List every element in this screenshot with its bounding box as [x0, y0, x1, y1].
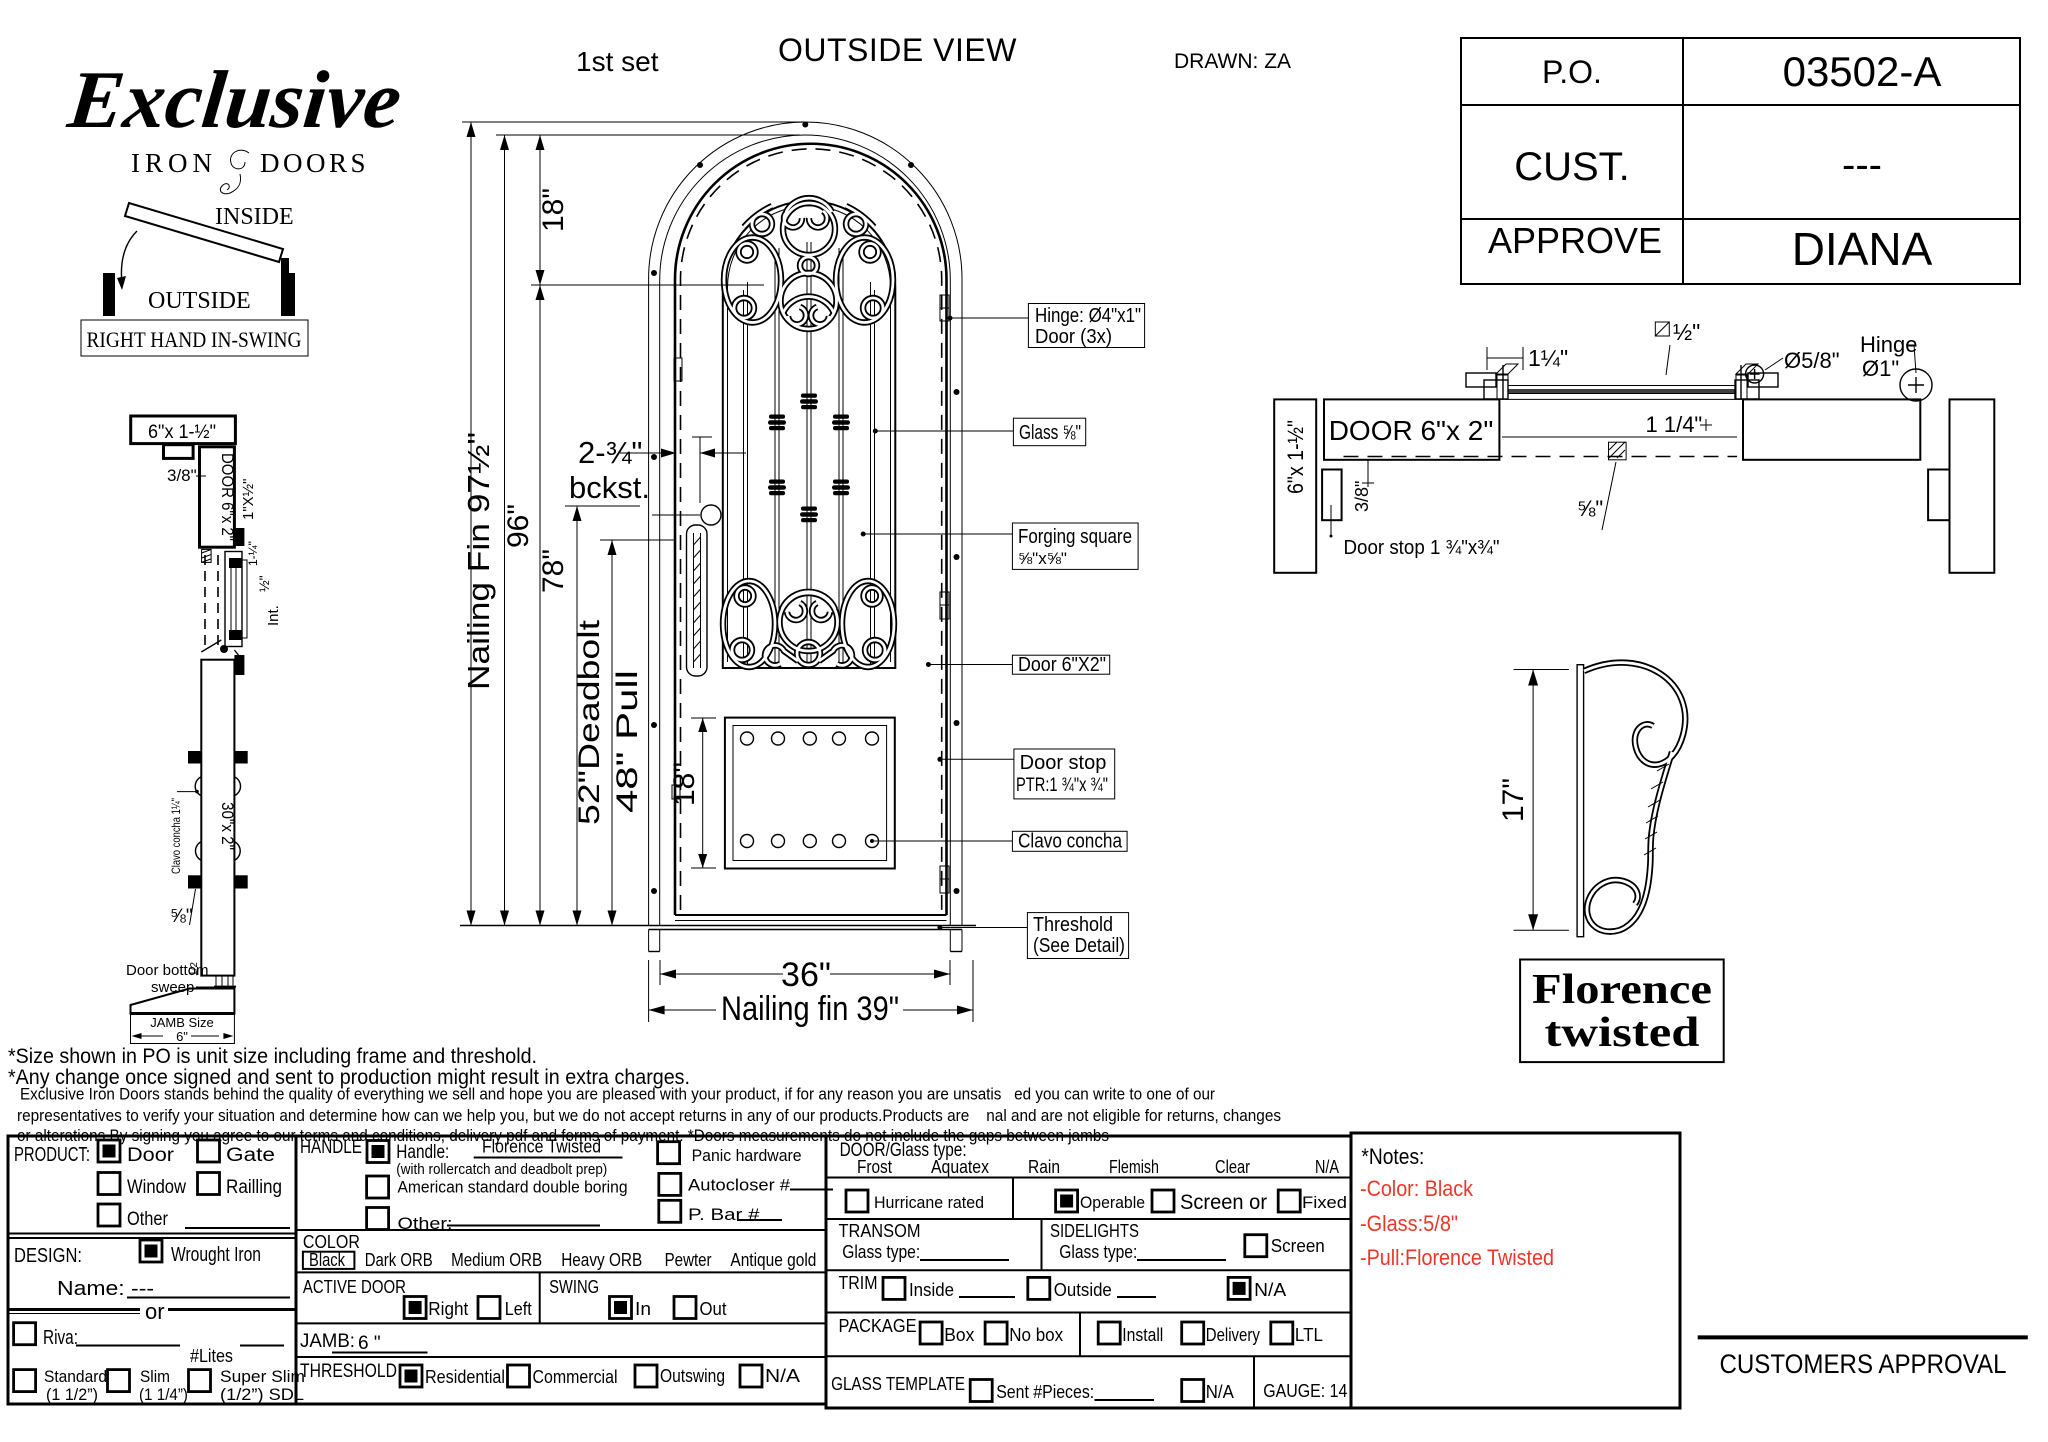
svg-text:Door 6"X2": Door 6"X2" — [1018, 654, 1106, 676]
svg-text:Int.: Int. — [265, 605, 282, 626]
svg-text:PACKAGE: PACKAGE — [839, 1316, 917, 1336]
svg-text:Left: Left — [505, 1299, 532, 1319]
svg-text:SWING: SWING — [549, 1277, 599, 1297]
svg-text:LTL: LTL — [1295, 1325, 1323, 1345]
svg-text:P.O.: P.O. — [1542, 54, 1602, 90]
svg-text:3/8": 3/8" — [167, 466, 197, 485]
svg-text:N/A: N/A — [765, 1366, 800, 1386]
svg-text:36": 36" — [781, 956, 831, 994]
svg-text:Hinge: Hinge — [1860, 332, 1917, 357]
svg-text:twisted: twisted — [1545, 1010, 1700, 1056]
svg-text:Nailing fin 39": Nailing fin 39" — [721, 990, 899, 1028]
svg-text:CUSTOMERS APPROVAL: CUSTOMERS APPROVAL — [1720, 1349, 2007, 1379]
svg-text:⅝": ⅝" — [1577, 496, 1603, 521]
svg-text:Door stop 1 ¾"x¾": Door stop 1 ¾"x¾" — [1344, 537, 1500, 559]
svg-text:Forging square: Forging square — [1018, 526, 1132, 548]
svg-text:-Pull:Florence Twisted: -Pull:Florence Twisted — [1360, 1245, 1554, 1270]
svg-text:Screen or: Screen or — [1180, 1191, 1267, 1214]
svg-text:Exclusive Iron Doors stands be: Exclusive Iron Doors stands behind the q… — [20, 1086, 1215, 1104]
svg-text:18": 18" — [537, 188, 570, 232]
svg-text:Frost: Frost — [857, 1157, 892, 1177]
svg-text:Hinge: Ø4"x1": Hinge: Ø4"x1" — [1035, 305, 1141, 327]
svg-text:48" Pull: 48" Pull — [611, 670, 644, 813]
svg-text:Pewter: Pewter — [665, 1250, 712, 1270]
svg-text:#Lites: #Lites — [190, 1346, 233, 1366]
svg-text:INSIDE: INSIDE — [215, 204, 294, 230]
svg-text:⅝"x⅝": ⅝"x⅝" — [1018, 549, 1067, 568]
svg-text:Door stop: Door stop — [1020, 752, 1107, 774]
svg-text:CUST.: CUST. — [1514, 145, 1630, 189]
svg-text:Hurricane rated: Hurricane rated — [874, 1193, 984, 1212]
svg-text:Inside: Inside — [909, 1280, 954, 1300]
svg-text:(1 1/2”): (1 1/2”) — [46, 1385, 98, 1404]
svg-text:Autocloser #: Autocloser # — [688, 1176, 791, 1195]
svg-text:DOOR 6"x 2": DOOR 6"x 2" — [1329, 415, 1494, 446]
svg-text:Box: Box — [944, 1325, 974, 1345]
svg-text:*Notes:: *Notes: — [1361, 1144, 1424, 1169]
svg-text:IRON: IRON — [131, 148, 217, 178]
svg-text:N/A: N/A — [1206, 1382, 1234, 1402]
svg-text:Fixed: Fixed — [1302, 1193, 1347, 1212]
svg-text:1/2: 1/2 — [189, 962, 200, 976]
svg-text:JAMB:: JAMB: — [300, 1331, 355, 1352]
svg-text:Threshold: Threshold — [1033, 914, 1113, 936]
svg-text:Clear: Clear — [1215, 1157, 1250, 1177]
svg-text:Door (3x): Door (3x) — [1035, 326, 1112, 348]
svg-text:3/8": 3/8" — [1352, 481, 1372, 512]
svg-text:DIANA: DIANA — [1792, 223, 1933, 275]
svg-text:P. Bar #: P. Bar # — [688, 1205, 760, 1224]
svg-text:JAMB Size: JAMB Size — [150, 1015, 214, 1030]
svg-text:Window: Window — [127, 1177, 186, 1198]
svg-text:Other: Other — [127, 1209, 169, 1230]
svg-text:THRESHOLD: THRESHOLD — [300, 1361, 397, 1382]
svg-text:GAUGE: 14: GAUGE: 14 — [1263, 1381, 1347, 1401]
svg-text:GLASS TEMPLATE: GLASS TEMPLATE — [831, 1374, 965, 1394]
svg-text:Flemish: Flemish — [1109, 1157, 1159, 1177]
svg-text:COLOR: COLOR — [303, 1232, 360, 1252]
svg-text:Install: Install — [1122, 1325, 1163, 1345]
svg-text:1"X½": 1"X½" — [240, 478, 257, 520]
svg-text:1 1/4": 1 1/4" — [1646, 412, 1703, 437]
svg-text:52"Deadbolt: 52"Deadbolt — [573, 619, 606, 825]
svg-text:Delivery: Delivery — [1206, 1325, 1260, 1345]
svg-text:Residential: Residential — [425, 1367, 505, 1387]
svg-text:Commercial: Commercial — [533, 1367, 618, 1387]
svg-text:DRAWN: ZA: DRAWN: ZA — [1174, 50, 1291, 73]
svg-text:Door: Door — [127, 1145, 175, 1166]
svg-text:Glass type:: Glass type: — [1059, 1242, 1137, 1262]
svg-text:Medium ORB: Medium ORB — [451, 1250, 542, 1270]
svg-text:Slim: Slim — [140, 1367, 170, 1386]
svg-text:Ø5/8": Ø5/8" — [1784, 348, 1840, 373]
svg-text:Sent #Pieces:: Sent #Pieces: — [996, 1382, 1094, 1402]
svg-text:Ø1": Ø1" — [1862, 356, 1899, 381]
svg-text:6"x 1-½": 6"x 1-½" — [1283, 420, 1308, 494]
svg-text:DOOR 6"x 2": DOOR 6"x 2" — [218, 453, 237, 541]
svg-text:Screen: Screen — [1271, 1236, 1325, 1256]
svg-text:Standard: Standard — [44, 1367, 107, 1386]
svg-text:Florence Twisted: Florence Twisted — [482, 1137, 601, 1157]
svg-text:---: --- — [1842, 143, 1882, 187]
svg-text:½": ½" — [256, 575, 272, 592]
svg-text:TRANSOM: TRANSOM — [839, 1221, 921, 1241]
svg-text:Outside: Outside — [1054, 1280, 1112, 1300]
svg-text:Panic hardware: Panic hardware — [692, 1146, 802, 1165]
svg-text:Super Slim: Super Slim — [220, 1367, 305, 1386]
svg-text:DOORS: DOORS — [260, 148, 369, 178]
svg-text:Antique gold: Antique gold — [730, 1250, 816, 1270]
svg-text:Railling: Railling — [226, 1177, 282, 1198]
svg-text:6 ": 6 " — [358, 1333, 381, 1354]
svg-text:Glass ⅝": Glass ⅝" — [1019, 422, 1081, 444]
svg-text:1st set: 1st set — [576, 46, 659, 77]
svg-text:96": 96" — [502, 504, 535, 548]
svg-text:Exclusive: Exclusive — [63, 54, 406, 145]
svg-text:N/A: N/A — [1254, 1280, 1286, 1300]
svg-text:(1/2”) SDL: (1/2”) SDL — [220, 1385, 304, 1404]
svg-text:SIDELIGHTS: SIDELIGHTS — [1050, 1221, 1139, 1241]
svg-text:TRIM: TRIM — [839, 1273, 878, 1293]
svg-text:Other:: Other: — [398, 1214, 453, 1233]
svg-text:OUTSIDE: OUTSIDE — [148, 288, 251, 314]
svg-text:ACTIVE DOOR: ACTIVE DOOR — [303, 1277, 406, 1297]
svg-text:PRODUCT:: PRODUCT: — [14, 1144, 90, 1166]
svg-text:1-¼": 1-¼" — [246, 541, 260, 566]
svg-text:17": 17" — [1497, 778, 1530, 822]
svg-text:18": 18" — [668, 762, 701, 806]
svg-text:6": 6" — [176, 1029, 188, 1044]
svg-text:American standard double borin: American standard double boring — [398, 1178, 628, 1197]
svg-text:Outswing: Outswing — [660, 1366, 725, 1386]
svg-text:Glass type:: Glass type: — [842, 1242, 920, 1262]
svg-text:30"x 2": 30"x 2" — [218, 802, 237, 850]
svg-text:representatives to verify your: representatives to verify your situation… — [17, 1107, 1281, 1125]
svg-text:bckst.: bckst. — [569, 470, 650, 505]
svg-text:6"x 1-½": 6"x 1-½" — [148, 422, 216, 443]
svg-text:-Color: Black: -Color: Black — [1360, 1176, 1474, 1201]
svg-text:03502-A: 03502-A — [1783, 48, 1942, 95]
svg-text:-Glass:5/8": -Glass:5/8" — [1360, 1211, 1458, 1236]
svg-text:In: In — [635, 1299, 651, 1319]
svg-text:Heavy ORB: Heavy ORB — [561, 1250, 642, 1270]
svg-text:No box: No box — [1009, 1325, 1063, 1345]
svg-text:Out: Out — [700, 1299, 727, 1319]
svg-text:PTR:1 ¾"x ¾": PTR:1 ¾"x ¾" — [1016, 775, 1108, 796]
svg-text:½": ½" — [1673, 319, 1700, 345]
svg-text:N/A: N/A — [1315, 1157, 1339, 1177]
svg-text:1¼": 1¼" — [1528, 345, 1568, 371]
svg-text:OUTSIDE VIEW: OUTSIDE VIEW — [778, 32, 1017, 68]
svg-text:or: or — [145, 1299, 165, 1324]
svg-text:Wrought Iron: Wrought Iron — [171, 1244, 261, 1266]
svg-text:Florence: Florence — [1532, 967, 1712, 1013]
svg-text:DESIGN:: DESIGN: — [14, 1245, 82, 1267]
svg-text:APPROVE: APPROVE — [1488, 220, 1662, 261]
svg-text:Operable: Operable — [1080, 1193, 1145, 1212]
svg-text:Gate: Gate — [226, 1145, 275, 1166]
svg-text:Dark ORB: Dark ORB — [365, 1250, 433, 1270]
svg-text:Clavo concha 1¼": Clavo concha 1¼" — [169, 798, 183, 874]
svg-text:HANDLE: HANDLE — [300, 1137, 362, 1158]
svg-text:*Size shown in PO is unit size: *Size shown in PO is unit size including… — [8, 1045, 537, 1068]
svg-text:Riva:: Riva: — [43, 1327, 78, 1349]
svg-text:RIGHT HAND IN-SWING: RIGHT HAND IN-SWING — [87, 327, 302, 352]
svg-text:Handle:: Handle: — [396, 1142, 449, 1163]
svg-text:Clavo concha: Clavo concha — [1018, 831, 1123, 853]
svg-text:Rain: Rain — [1028, 1157, 1060, 1177]
svg-text:78": 78" — [537, 549, 570, 593]
svg-text:(See Detail): (See Detail) — [1033, 935, 1125, 957]
svg-text:(1 1/4”): (1 1/4”) — [139, 1385, 188, 1404]
svg-text:Nailing Fin 97½": Nailing Fin 97½" — [461, 432, 496, 690]
svg-text:(with rollercatch and deadbolt: (with rollercatch and deadbolt prep) — [396, 1161, 607, 1178]
svg-text:Black: Black — [309, 1250, 346, 1270]
svg-text:2-¾": 2-¾" — [578, 435, 642, 470]
svg-text:Right: Right — [428, 1299, 468, 1319]
svg-text:Aquatex: Aquatex — [931, 1157, 989, 1177]
